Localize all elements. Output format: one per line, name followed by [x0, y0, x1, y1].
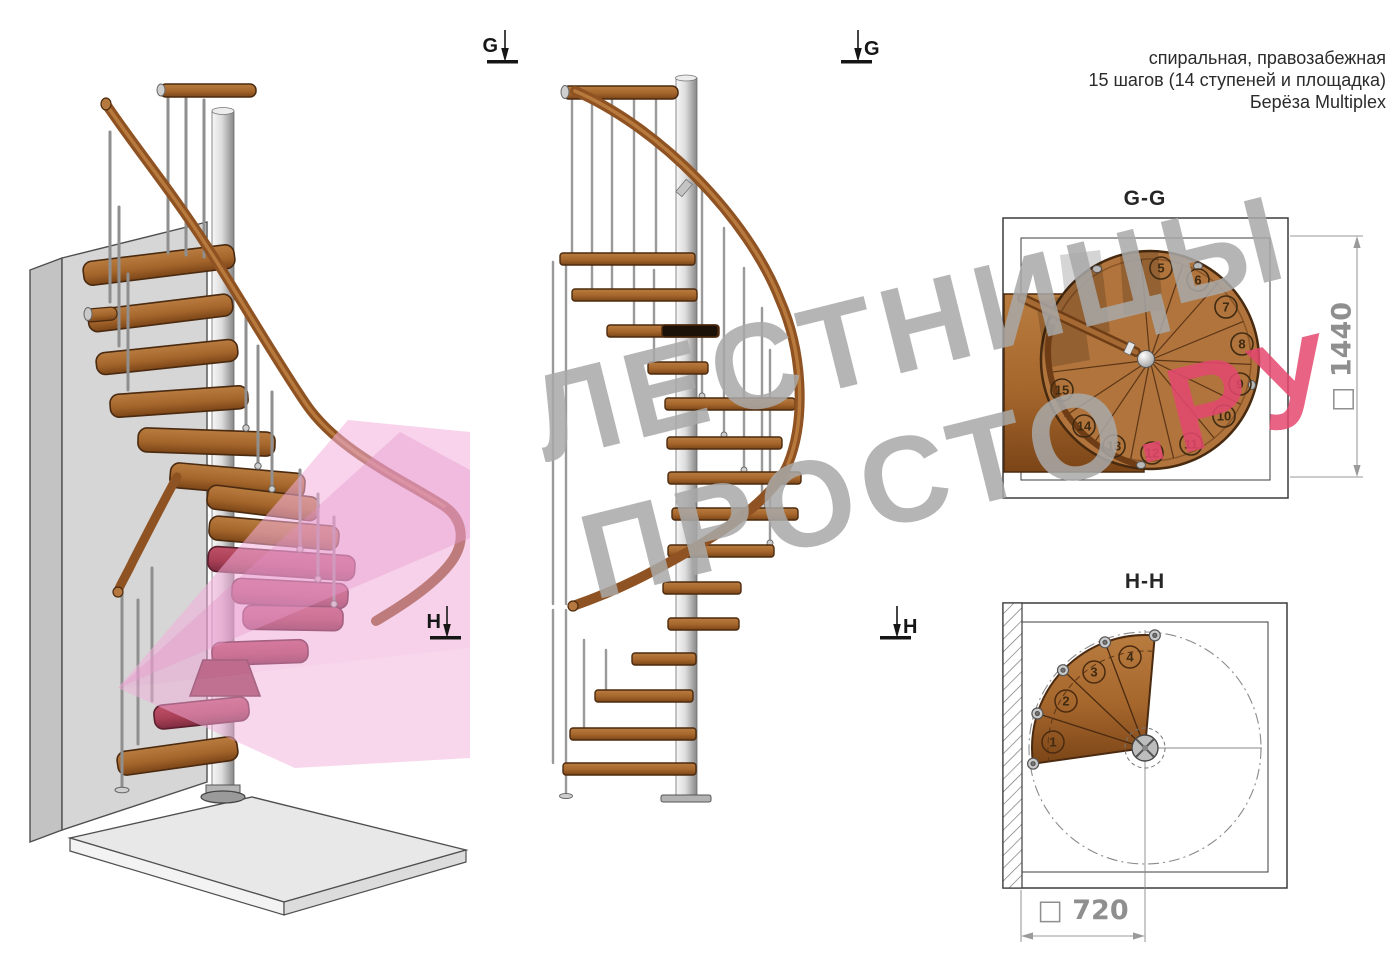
hh-plan: H-H 1 2 3 — [1003, 570, 1287, 942]
drawing-sheet: спиральная, правозабежная 15 шагов (14 с… — [0, 0, 1400, 969]
hh-step-number: 1 — [1049, 735, 1056, 750]
section-marker-g-left: G — [482, 30, 518, 64]
section-marker-h-right: H — [880, 606, 917, 640]
svg-text:G: G — [482, 35, 498, 57]
summary-line-material: Берёза Multiplex — [1088, 91, 1386, 113]
hh-step-number: 3 — [1090, 665, 1097, 680]
hh-wall-hatch — [1003, 603, 1022, 888]
section-marker-g-right: G — [841, 30, 880, 64]
hh-step-number: 2 — [1062, 694, 1069, 709]
staircase-drawing: G-G — [0, 0, 1400, 969]
svg-text:H: H — [903, 616, 917, 638]
3d-perspective-view — [30, 84, 470, 915]
hh-step-number: 4 — [1126, 650, 1134, 665]
summary-line-type: спиральная, правозабежная — [1088, 47, 1386, 69]
product-summary: спиральная, правозабежная 15 шагов (14 с… — [1088, 47, 1386, 113]
watermark: ЛЕСТНИЦЫ ПРОСТО.РУ — [518, 164, 1352, 629]
svg-text:G: G — [864, 38, 880, 60]
hh-title: H-H — [1125, 570, 1165, 593]
svg-text:H: H — [427, 611, 441, 633]
floor-slab — [70, 797, 466, 915]
hh-dimension-label: □ 720 — [1037, 895, 1128, 926]
summary-line-steps: 15 шагов (14 ступеней и площадка) — [1088, 69, 1386, 91]
